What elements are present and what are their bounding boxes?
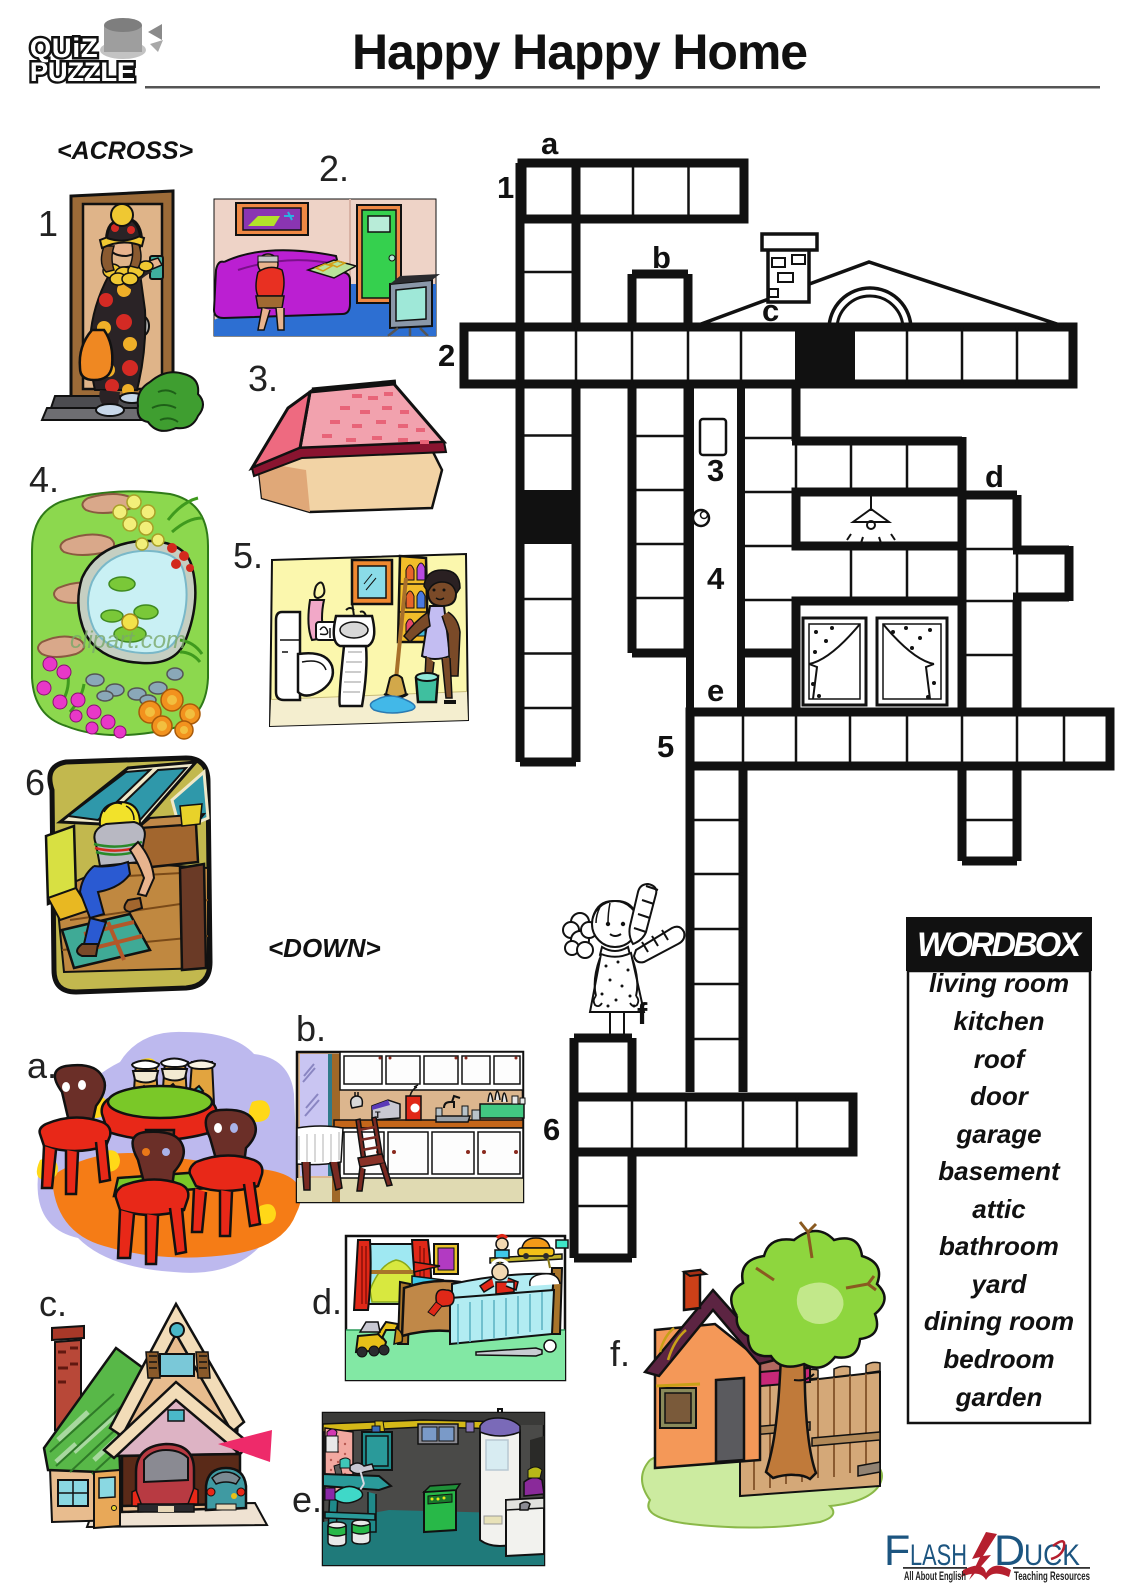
- svg-text:4: 4: [707, 561, 725, 596]
- svg-text:c: c: [762, 293, 779, 328]
- svg-text:<ACROSS>: <ACROSS>: [57, 137, 194, 165]
- svg-text:kitchen: kitchen: [953, 1006, 1044, 1036]
- svg-text:door: door: [970, 1081, 1030, 1111]
- svg-text:clipart.com: clipart.com: [70, 627, 186, 654]
- svg-text:roof: roof: [974, 1044, 1027, 1074]
- svg-text:bathroom: bathroom: [939, 1231, 1059, 1261]
- svg-text:PUZZLE: PUZZLE: [30, 57, 135, 87]
- svg-text:a.: a.: [27, 1045, 57, 1086]
- svg-text:6: 6: [25, 762, 45, 803]
- svg-text:6: 6: [543, 1112, 560, 1147]
- svg-text:3.: 3.: [248, 358, 278, 399]
- svg-text:basement: basement: [938, 1156, 1061, 1186]
- svg-text:f: f: [637, 996, 648, 1031]
- svg-text:4.: 4.: [29, 459, 59, 500]
- svg-text:bedroom: bedroom: [943, 1344, 1054, 1374]
- svg-text:WORDBOX: WORDBOX: [917, 926, 1083, 964]
- svg-text:a: a: [541, 126, 559, 161]
- svg-text:e.: e.: [292, 1479, 322, 1520]
- svg-text:b.: b.: [296, 1008, 326, 1049]
- svg-text:d.: d.: [312, 1281, 342, 1322]
- svg-text:3: 3: [707, 453, 724, 488]
- svg-text:attic: attic: [972, 1194, 1026, 1224]
- svg-text:<DOWN>: <DOWN>: [268, 933, 381, 963]
- svg-text:d: d: [985, 459, 1004, 494]
- svg-text:e: e: [707, 673, 724, 708]
- svg-text:Teaching Resources: Teaching Resources: [1014, 1569, 1090, 1583]
- svg-text:All About English: All About English: [904, 1569, 966, 1583]
- svg-text:garage: garage: [955, 1119, 1041, 1149]
- svg-text:c.: c.: [39, 1283, 67, 1324]
- svg-text:f.: f.: [610, 1333, 630, 1374]
- svg-text:1: 1: [38, 203, 58, 244]
- svg-text:garden: garden: [955, 1382, 1043, 1412]
- svg-text:5: 5: [657, 729, 674, 764]
- svg-text:dining room: dining room: [924, 1306, 1074, 1336]
- svg-text:living room: living room: [929, 968, 1069, 998]
- svg-text:yard: yard: [970, 1269, 1028, 1299]
- svg-text:b: b: [652, 240, 671, 275]
- svg-text:1: 1: [497, 170, 514, 205]
- svg-text:5.: 5.: [233, 535, 263, 576]
- svg-text:Happy Happy Home: Happy Happy Home: [352, 24, 808, 80]
- svg-text:2: 2: [438, 338, 455, 373]
- svg-text:2.: 2.: [319, 148, 349, 189]
